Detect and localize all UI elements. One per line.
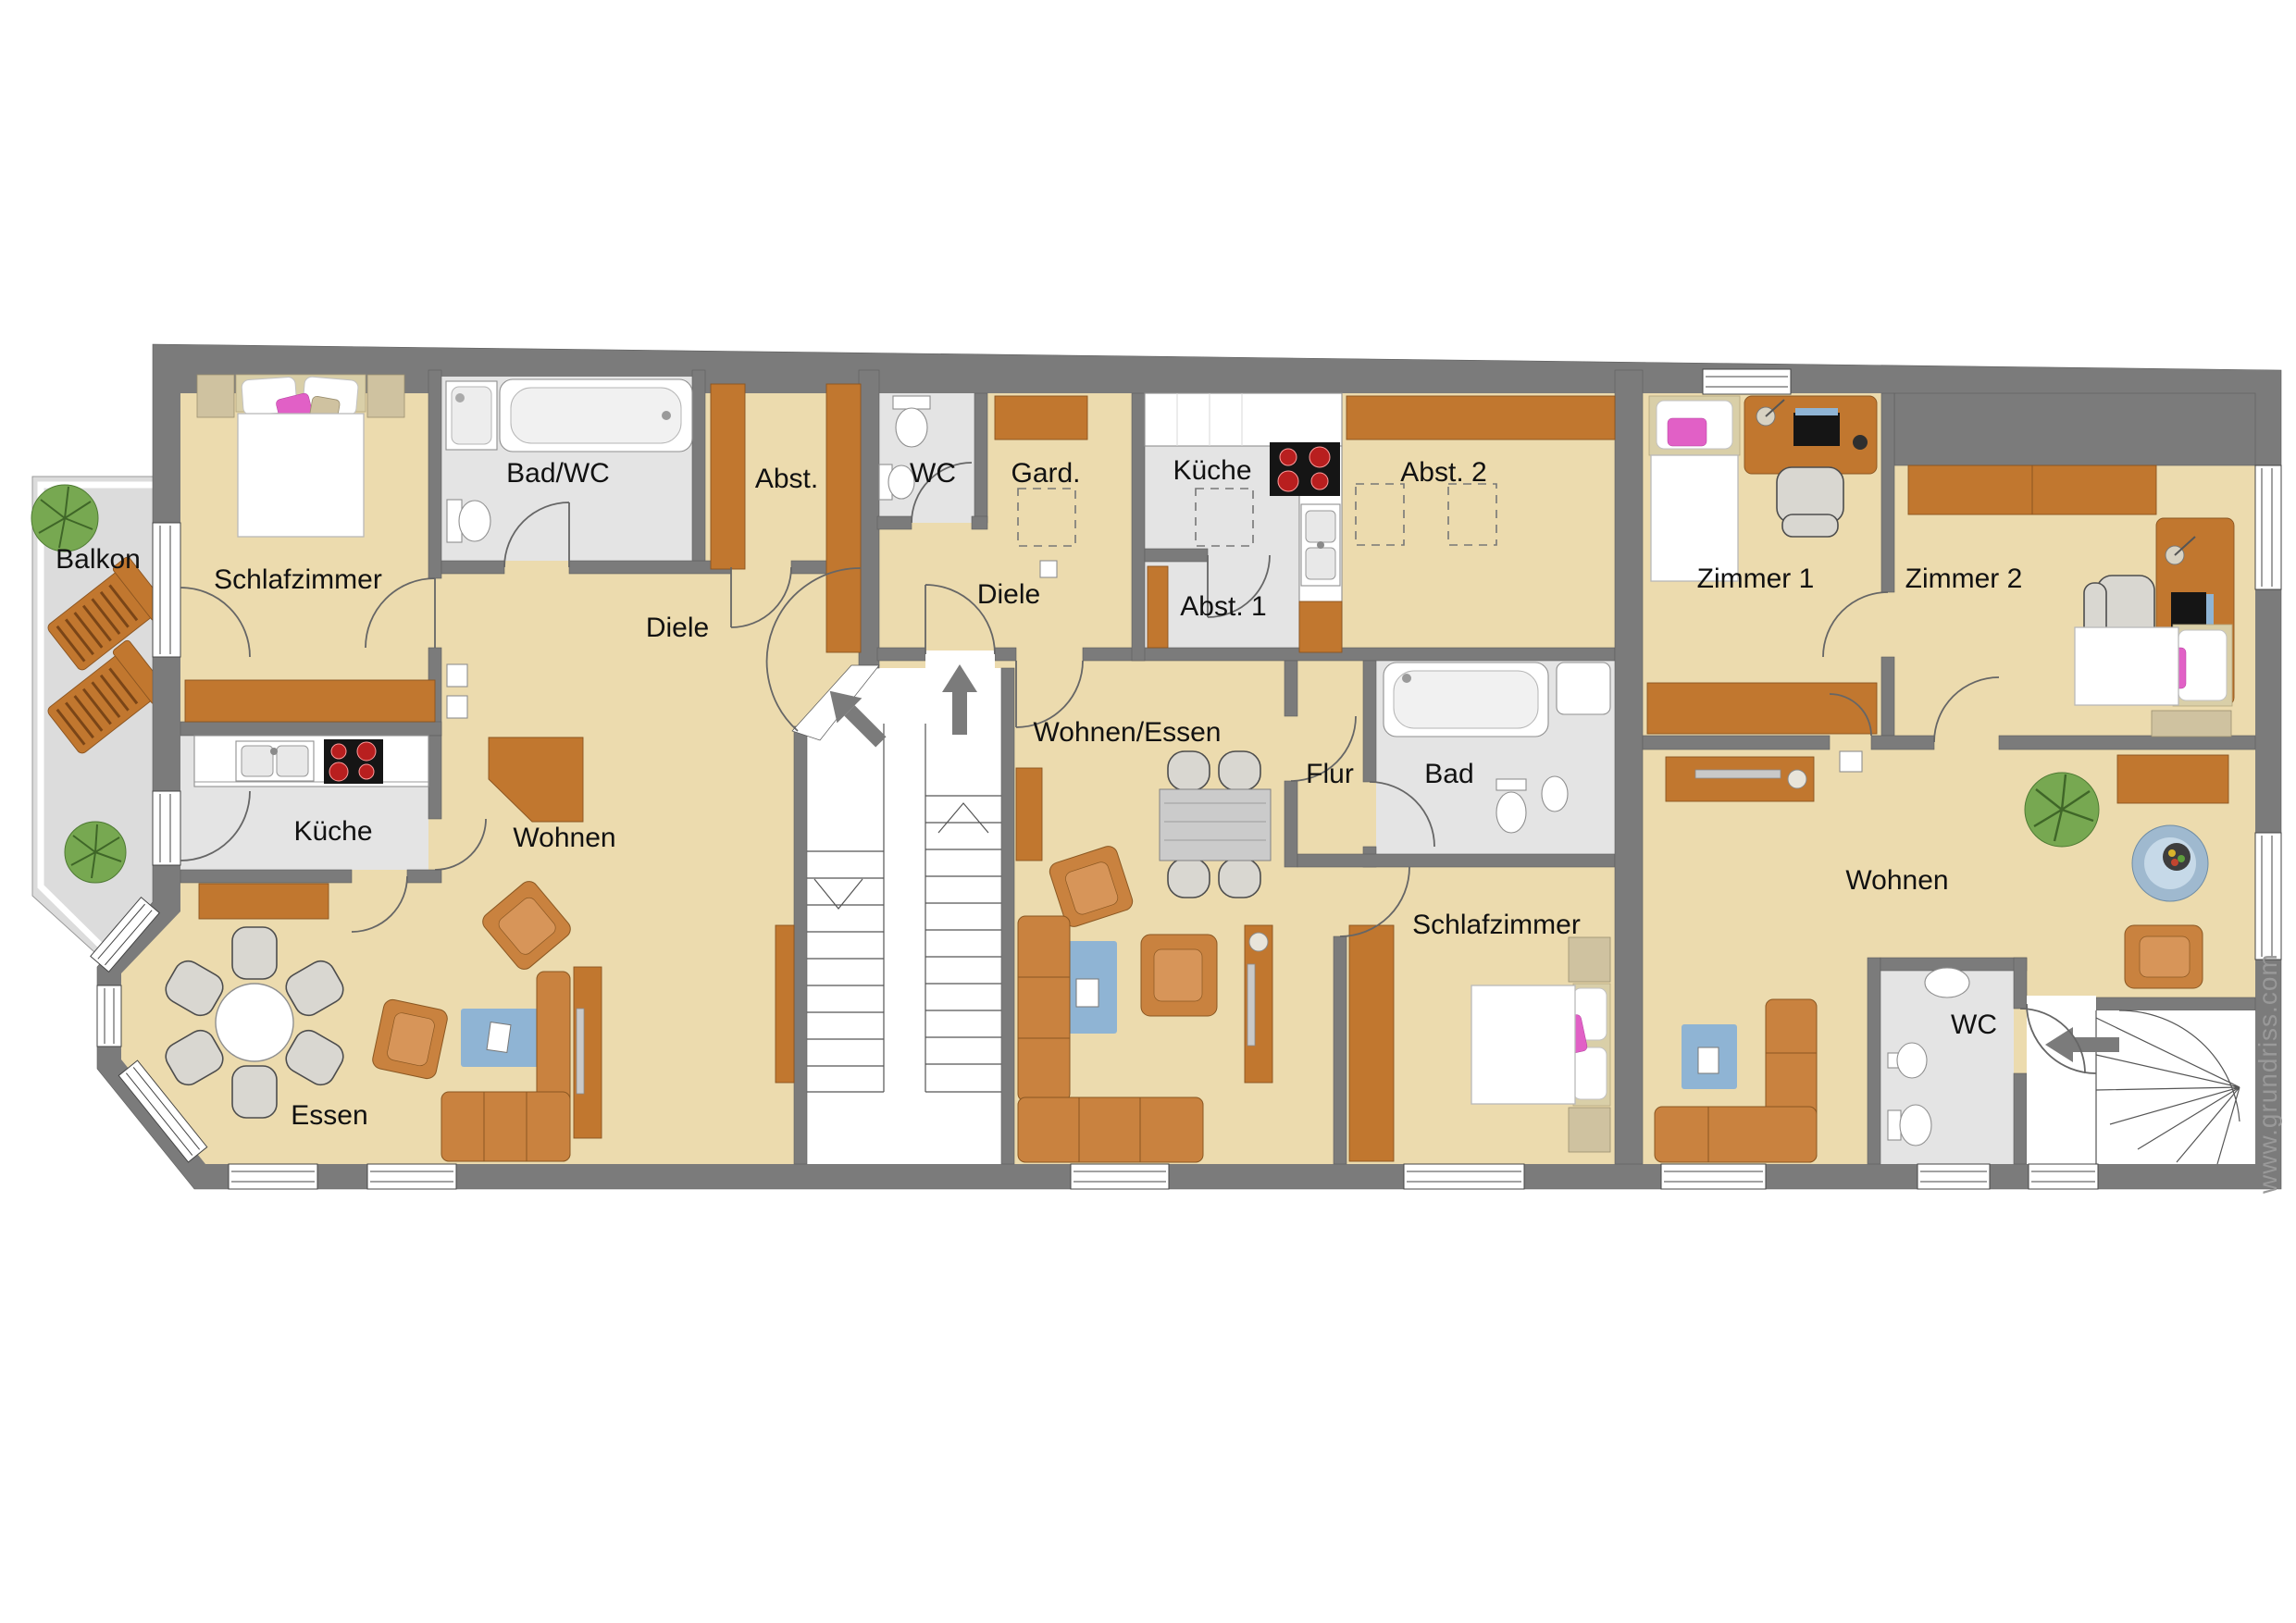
window (2255, 833, 2281, 960)
shelf (776, 925, 794, 1083)
bathtub-icon (500, 379, 692, 452)
single-bed-icon (2075, 625, 2232, 706)
room-label-diele-middle: Diele (977, 579, 1040, 610)
armchair-icon (371, 998, 449, 1081)
room-label-bad-wc: Bad/WC (506, 458, 610, 489)
balcony-door (153, 791, 180, 865)
window (367, 1164, 456, 1189)
wardrobe (2117, 755, 2228, 803)
wardrobe (1908, 465, 2156, 514)
single-bed-icon (1649, 396, 1740, 581)
plant-icon (65, 822, 126, 883)
toilet-icon (893, 396, 930, 447)
washbasin-icon (1925, 968, 1969, 997)
wardrobe (995, 396, 1087, 440)
desk-icon (1744, 396, 1877, 474)
wardrobe (711, 384, 745, 569)
washbasin-icon (1557, 663, 1610, 714)
room-label-zimmer2: Zimmer 2 (1905, 564, 2023, 594)
entry-door-right (2027, 996, 2096, 1010)
room-label-wc-right: WC (1951, 1010, 1997, 1040)
room-label-wohnen-left: Wohnen (513, 823, 615, 853)
armchair-icon (1141, 935, 1217, 1016)
window (1661, 1164, 1766, 1189)
room-label-abstell-left: Abst. (755, 464, 818, 494)
cabinet (1299, 601, 1342, 652)
room-label-schlafzimmer-middle: Schlafzimmer (1412, 910, 1581, 940)
sink-icon (236, 741, 314, 781)
room-label-flur: Flur (1306, 759, 1354, 789)
room-label-abstell1: Abst. 1 (1180, 591, 1266, 622)
balcony: Balkon (31, 477, 170, 960)
rug (2152, 711, 2231, 737)
coffee-table-icon (1682, 1024, 1737, 1089)
room-label-essen-left: Essen (291, 1100, 367, 1131)
coffee-table-icon (461, 1009, 549, 1067)
window (1071, 1164, 1169, 1189)
kitchen-counter (194, 736, 428, 787)
room-label-diele-left: Diele (646, 613, 709, 643)
window (2029, 1164, 2098, 1189)
floor-plan: Balkon (0, 0, 2296, 1623)
bathtub-icon (1384, 663, 1548, 737)
armchair-icon (2125, 925, 2203, 988)
shower-tray-icon (446, 381, 497, 450)
cooktop-icon (324, 739, 383, 784)
tv-sideboard (1245, 925, 1272, 1083)
room-label-schlafzimmer-left: Schlafzimmer (214, 564, 382, 595)
tv-sideboard (574, 967, 602, 1138)
watermark: www.grundriss.com (2253, 953, 2282, 1195)
window (1703, 369, 1791, 394)
shelf (1016, 768, 1042, 861)
room-label-kueche-middle: Küche (1173, 455, 1251, 486)
tv-sideboard (1666, 757, 1814, 801)
room-label-wohnen-right: Wohnen (1845, 865, 1948, 896)
shelf (1347, 396, 1615, 440)
room-label-bad-middle: Bad (1424, 759, 1473, 789)
bidet-icon (1542, 776, 1568, 811)
wardrobe (185, 680, 435, 722)
room-label-zimmer1: Zimmer 1 (1697, 564, 1815, 594)
wardrobe (1148, 566, 1168, 648)
plant-icon (31, 485, 98, 551)
wall (1894, 393, 2255, 465)
room-label-garderobe: Gard. (1011, 458, 1080, 489)
round-table-icon (2132, 825, 2208, 901)
room-label-wc-middle: WC (910, 458, 956, 489)
bay-window (97, 985, 121, 1047)
window (2255, 465, 2281, 589)
toilet-icon (447, 500, 490, 542)
window (1404, 1164, 1524, 1189)
balcony-door (153, 523, 180, 657)
floor-plan-page: Balkon (0, 0, 2296, 1623)
room-label-kueche-left: Küche (293, 816, 372, 847)
plant-icon (2025, 773, 2099, 847)
toilet-icon (1888, 1105, 1931, 1146)
window (229, 1164, 317, 1189)
room-label-balkon: Balkon (56, 544, 141, 575)
wardrobe (1349, 925, 1394, 1161)
window (1917, 1164, 1990, 1189)
cooktop-icon (1270, 442, 1340, 496)
wardrobe (826, 384, 861, 652)
sink-icon (1301, 504, 1340, 586)
toilet-icon (1496, 779, 1526, 833)
sideboard (199, 884, 329, 919)
room-label-abstell2: Abst. 2 (1400, 457, 1486, 488)
room-label-wohnen-essen: Wohnen/Essen (1034, 717, 1222, 748)
wardrobe (1647, 683, 1877, 734)
office-chair-icon (1777, 467, 1843, 537)
stairwell-center (794, 668, 1001, 1164)
